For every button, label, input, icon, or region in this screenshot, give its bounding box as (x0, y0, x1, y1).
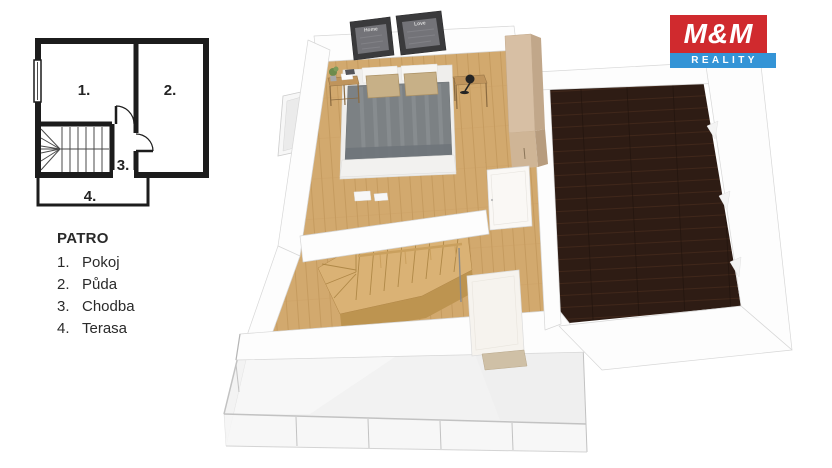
plan2d-window (34, 60, 41, 102)
wardrobe-front (505, 34, 535, 133)
legend-item-number: 2. (57, 274, 82, 296)
legend-item-1: 1. Pokoj (57, 252, 135, 274)
plan2d-label-room1: 1. (78, 82, 91, 99)
door-knob (491, 199, 493, 201)
plan2d-label-room4: 4. (84, 188, 97, 205)
logo-reality-text: REALITY (670, 53, 776, 68)
pillow-right (404, 72, 438, 96)
plan2d-stairs (41, 127, 109, 172)
plant-pot (330, 76, 337, 82)
floorplan-2d: 1. 2. 3. 4. (0, 0, 240, 230)
plan2d-label-room3: 3. (117, 157, 130, 174)
legend-item-label: Terasa (82, 318, 127, 340)
plan2d-label-room2: 2. (164, 82, 177, 99)
bedside-rug (354, 191, 371, 201)
attic-floor (543, 80, 741, 324)
pillow-left (366, 74, 400, 98)
legend-item-label: Chodba (82, 296, 135, 318)
legend-item-number: 1. (57, 252, 82, 274)
wardrobe-lower (509, 131, 538, 169)
legend-item-3: 3. Chodba (57, 296, 135, 318)
mm-reality-logo: M&M REALITY (670, 15, 776, 68)
book (345, 69, 355, 75)
legend-item-number: 4. (57, 318, 82, 340)
bedside-rug-2 (374, 193, 388, 201)
poster-title-right: Love (414, 20, 426, 27)
logo-mm-text: M&M (670, 15, 767, 53)
legend-item-label: Pokoj (82, 252, 120, 274)
legend: PATRO 1. Pokoj 2. Půda 3. Chodba 4. Tera… (57, 230, 135, 340)
wardrobe (505, 34, 548, 169)
plan2d-walls (38, 41, 206, 205)
floorplan-page: Home Love (0, 0, 832, 468)
legend-title: PATRO (57, 230, 135, 247)
legend-item-label: Půda (82, 274, 117, 296)
legend-item-4: 4. Terasa (57, 318, 135, 340)
legend-item-2: 2. Půda (57, 274, 135, 296)
legend-item-number: 3. (57, 296, 82, 318)
